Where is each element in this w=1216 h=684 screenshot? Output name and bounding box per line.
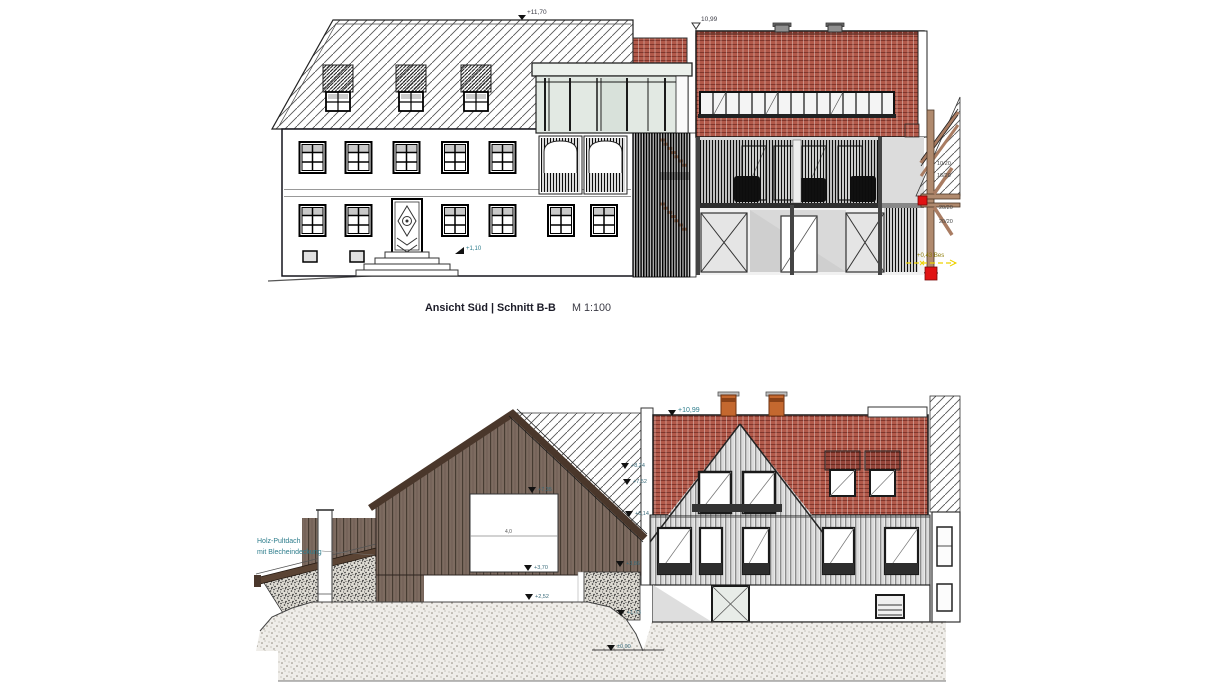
bestand-label: +0,43 Bes: [917, 253, 944, 259]
chimney-1: [718, 392, 739, 416]
basement-window-1: [303, 251, 317, 262]
timber-label-2: 16/20: [937, 173, 951, 179]
hatched-wall-band: [930, 396, 960, 512]
window-lower-3: [442, 205, 468, 236]
svg-text:+1,10: +1,10: [466, 246, 482, 252]
flat-roof-slab: [532, 63, 692, 76]
window-lower-6: [591, 205, 617, 236]
svg-text:Holz-Pultdach: Holz-Pultdach: [257, 538, 301, 545]
chimney-2: [766, 392, 787, 416]
tiled-roof: [696, 31, 924, 137]
svg-text:+2,52: +2,52: [535, 594, 549, 600]
dormer-1: [825, 451, 860, 496]
level-marker-wall-top: +3,86: [616, 561, 640, 567]
rear-tiled-roof: [633, 38, 687, 66]
drawing-scale: M 1:100: [572, 302, 611, 314]
drawing-sheet: +1,10: [0, 0, 1216, 684]
svg-text:10,99: 10,99: [701, 16, 718, 23]
roof-window-band: [698, 92, 896, 118]
svg-text:+11,70: +11,70: [527, 9, 547, 16]
terrain-mound: [256, 602, 643, 651]
level-marker-slope: +1,73: [617, 610, 641, 616]
dormer-3: [461, 65, 491, 111]
basement-window-2: [350, 251, 364, 262]
window-upper-2: [346, 142, 372, 173]
svg-text:+7,35: +7,35: [538, 487, 552, 493]
svg-text:+7,52: +7,52: [633, 479, 647, 485]
window-upper-3: [394, 142, 420, 173]
slat-screen: [633, 133, 690, 277]
window-lower-4: [490, 205, 516, 236]
level-marker-mound: +2,52: [525, 594, 549, 600]
terrace-level: [696, 137, 924, 208]
svg-text:+10,99: +10,99: [678, 407, 700, 414]
level-marker-opening-bottom: +3,70: [524, 565, 548, 571]
svg-text:+8,24: +8,24: [631, 463, 645, 469]
level-marker-ridge: +11,70: [518, 9, 547, 20]
flue-pipe: [316, 510, 334, 603]
joint-marker: [918, 196, 927, 205]
window-lower-5: [548, 205, 574, 236]
terrace-slat-screen: [696, 140, 882, 203]
window-lower-1: [300, 205, 326, 236]
annex: [932, 512, 960, 622]
dormer-2: [396, 65, 426, 111]
window-upper-5: [490, 142, 516, 173]
drawing-title: Ansicht Süd | Schnitt B-B: [425, 302, 556, 314]
dormer-1: [323, 65, 353, 111]
timber-label-1: 10/20: [937, 161, 951, 167]
elevation-drawings: +1,10: [0, 0, 1216, 684]
svg-text:±0,00: ±0,00: [617, 644, 631, 650]
svg-text:+6,14: +6,14: [635, 511, 649, 517]
level-marker-roof-mid: +7,52: [623, 479, 647, 485]
svg-text:+1,73: +1,73: [627, 610, 641, 616]
top-elevation: +1,10: [268, 9, 960, 314]
level-marker-street: ±0,00: [607, 644, 631, 651]
bottom-elevation: +10,99 4,0 +8,24 +7,52: [254, 392, 960, 681]
svg-text:+3,70: +3,70: [534, 565, 548, 571]
balcony-rail: [692, 504, 782, 512]
barn-opening: [470, 494, 558, 572]
svg-text:+3,86: +3,86: [626, 561, 640, 567]
window-upper-4: [442, 142, 468, 173]
level-marker-opening-top: +7,35: [528, 487, 552, 493]
right-building: [696, 23, 927, 275]
window-upper-1: [300, 142, 326, 173]
svg-text:mit Blecheindeckung: mit Blecheindeckung: [257, 549, 322, 556]
dimension-label: 4,0: [505, 529, 512, 535]
window-lower-2: [346, 205, 372, 236]
dormer-2: [865, 451, 900, 496]
joint-marker: [925, 267, 937, 280]
entry-door: [392, 199, 422, 253]
timber-label-3: 20/20: [939, 205, 953, 211]
chimney-1: [773, 23, 791, 32]
level-marker-roof-upper: +8,24: [621, 463, 645, 469]
chimney-2: [826, 23, 844, 32]
level-marker-roof-lower: +6,14: [625, 511, 649, 517]
right-house: +10,99: [650, 392, 960, 622]
stair-tower: [633, 133, 696, 277]
timber-label-4: 20/20: [939, 219, 953, 225]
ground-floor: [653, 585, 930, 622]
